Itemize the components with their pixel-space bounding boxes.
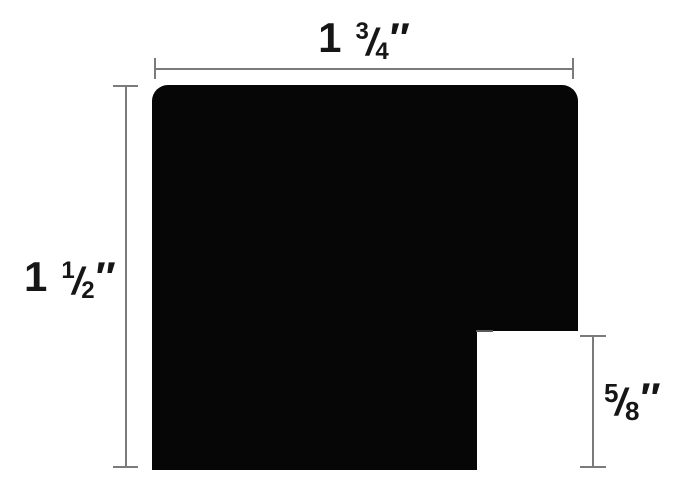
- dimension-line-left: [125, 86, 127, 467]
- inch-mark: ″: [96, 253, 116, 300]
- profile-shape-upper: [152, 85, 578, 331]
- dimension-tick-right-bottom: [580, 466, 606, 468]
- dimension-tick-left-top: [113, 85, 138, 87]
- diagram-canvas: 13/4″ 11/2″ 5/8″: [0, 0, 700, 500]
- dimension-line-top: [155, 68, 573, 70]
- dimension-label-rabbet-depth: 5/8″: [604, 377, 661, 424]
- profile-shape-lower: [152, 330, 477, 470]
- dimension-tick-right-top: [580, 335, 606, 337]
- dimension-tick-top-left: [154, 58, 156, 79]
- dimension-line-right: [592, 336, 594, 467]
- whole-number: 1: [318, 14, 341, 61]
- dimension-label-top-width: 13/4″: [318, 17, 410, 64]
- inch-mark: ″: [390, 14, 410, 61]
- inch-mark: ″: [641, 374, 661, 421]
- whole-number: 1: [24, 253, 47, 300]
- dimension-label-left-height: 11/2″: [24, 256, 116, 303]
- dimension-tick-top-right: [572, 58, 574, 79]
- rabbet-step-line: [476, 330, 493, 332]
- dimension-tick-left-bottom: [113, 466, 138, 468]
